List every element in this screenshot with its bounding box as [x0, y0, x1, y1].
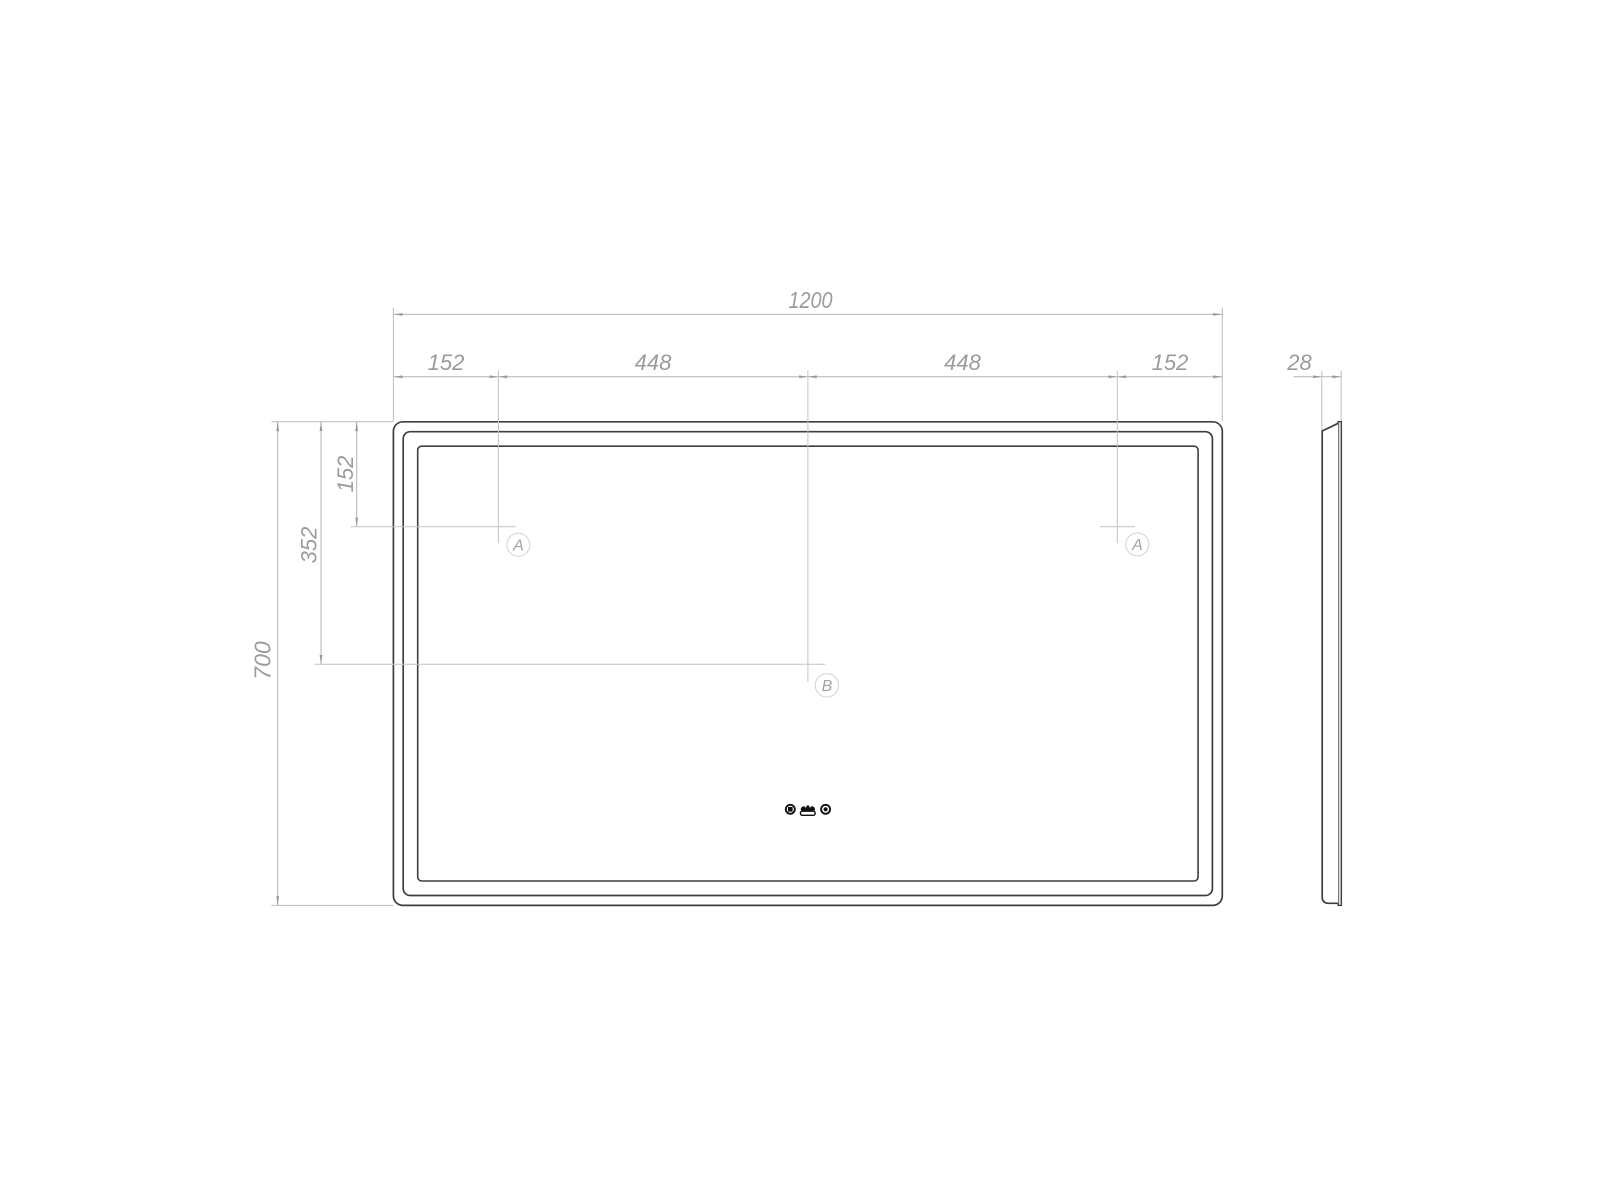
svg-text:1200: 1200 [789, 287, 833, 313]
svg-text:A: A [512, 538, 524, 555]
svg-text:B: B [822, 678, 833, 695]
svg-text:A: A [1131, 537, 1143, 554]
svg-text:28: 28 [1286, 350, 1312, 375]
svg-text:352: 352 [297, 527, 322, 564]
svg-text:152: 152 [333, 456, 358, 493]
svg-text:448: 448 [944, 350, 981, 375]
svg-text:152: 152 [1152, 350, 1189, 375]
svg-text:700: 700 [250, 641, 276, 680]
svg-text:448: 448 [635, 350, 672, 375]
svg-text:152: 152 [428, 350, 465, 375]
